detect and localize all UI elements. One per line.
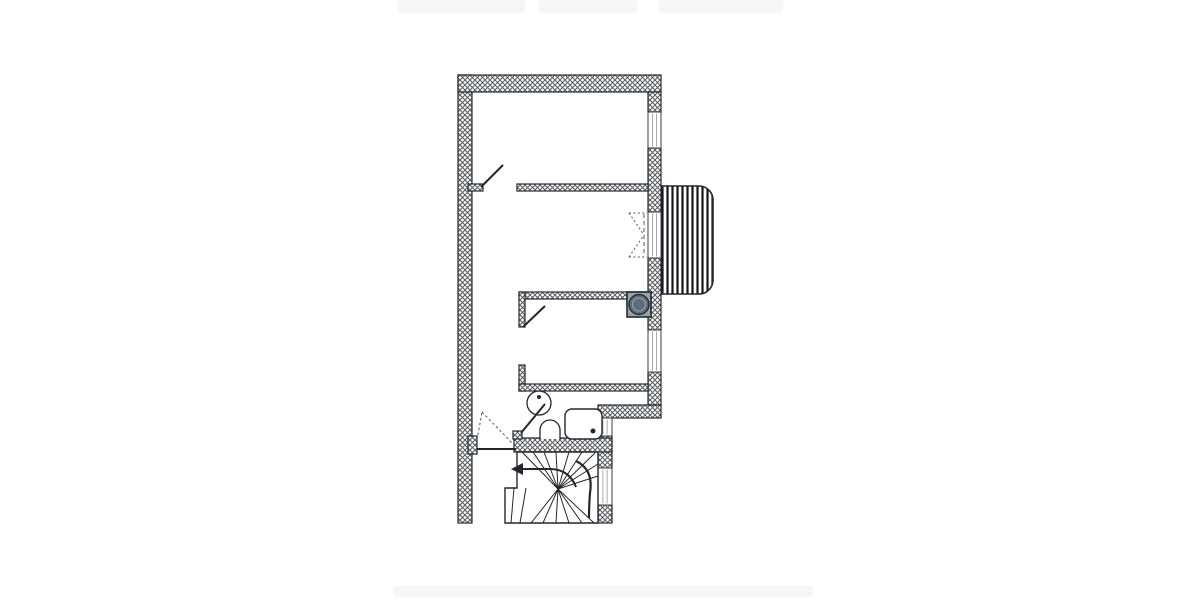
wall-top xyxy=(458,75,661,92)
door-leaf-room1 xyxy=(481,165,503,187)
washbasin-tap xyxy=(537,395,541,399)
entry-door-swing xyxy=(482,412,515,446)
floor-plan-page xyxy=(0,0,1200,600)
wall-right-seg2 xyxy=(648,148,661,212)
window-right-middle xyxy=(648,330,661,372)
entry-door-swing xyxy=(477,412,482,440)
balcony-door-swing xyxy=(629,235,644,257)
wall-stair-top xyxy=(514,438,612,452)
stair-outline xyxy=(505,452,598,523)
wall-room1-stub xyxy=(468,184,483,191)
wall-room2-leg-upper xyxy=(519,292,525,327)
window-right-upper xyxy=(648,112,661,148)
balcony-door-swing xyxy=(629,213,644,235)
wall-room1-partition xyxy=(517,184,648,191)
floor-plan-drawing xyxy=(0,0,1200,600)
balcony-decking xyxy=(659,186,713,294)
cropped-ui-remnant xyxy=(397,0,525,13)
wall-bathroom-top xyxy=(519,384,648,391)
entry-door-jamb xyxy=(468,436,477,454)
wall-left xyxy=(458,75,472,523)
cropped-ui-remnant xyxy=(538,0,638,13)
wall-right-seg4 xyxy=(648,372,661,405)
shower-tray xyxy=(565,409,602,439)
toilet xyxy=(540,420,560,439)
wall-lowerright-seg2 xyxy=(598,505,612,523)
balcony-door-panel xyxy=(648,212,661,258)
cropped-ui-remnant xyxy=(658,0,783,13)
door-leaf-room3 xyxy=(523,306,545,327)
shower-tray-drain xyxy=(591,429,596,434)
wall-jog-horizontal xyxy=(598,405,661,418)
wall-right-seg1 xyxy=(648,92,661,112)
cropped-ui-remnant xyxy=(393,586,813,597)
window-stairwell xyxy=(598,468,612,505)
